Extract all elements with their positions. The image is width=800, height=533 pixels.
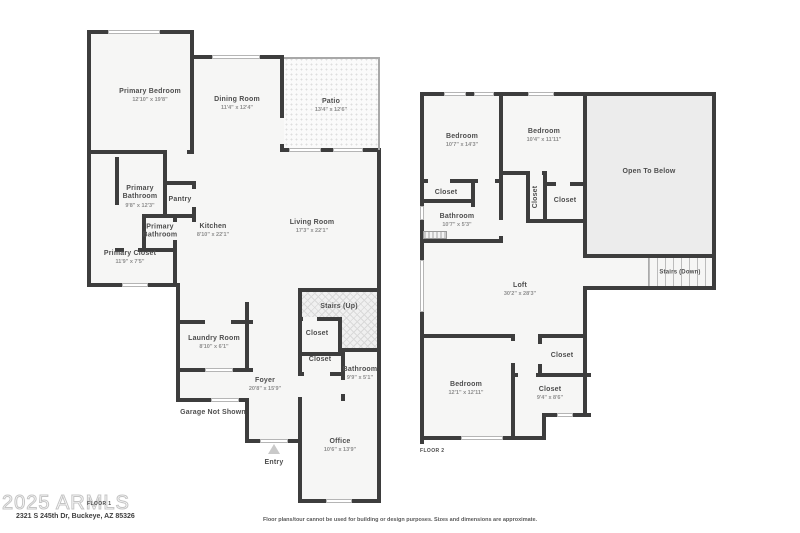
window [461,436,503,440]
room-label-bathroom-f2: Bathroom 10'7" x 5'3" [440,213,475,229]
room-dims: 10'7" x 5'3" [440,222,475,229]
room-name: Office [324,438,356,446]
wall-segment [298,288,302,376]
door-opening [167,150,187,154]
wall-segment [190,30,194,154]
door-opening [511,341,515,363]
wall-segment [176,283,180,324]
room-dims: 10'6" x 13'9" [324,447,356,454]
room-dims: 20'8" x 15'9" [249,386,281,393]
room-label-bathroom-f1: Bathroom 9'9" x 5'1" [343,366,378,382]
room-dims: 10'4" x 11'11" [527,137,562,144]
wall-segment [377,148,381,503]
room-label-patio: Patio 13'4" x 12'6" [315,98,347,114]
room-name: Closet [537,386,563,394]
wall-segment [583,286,587,417]
room-name: Pantry [169,196,192,204]
floor2-label: FLOOR 2 [420,448,444,454]
wall-segment [420,239,503,243]
room-dims: 13'4" x 12'6" [315,107,347,114]
wall-segment [298,288,381,292]
door-opening [192,189,196,207]
door-opening [530,171,542,175]
room-label-primary-bedroom: Primary Bedroom 12'10" x 19'8" [119,88,181,104]
garage-note-text: Garage Not Shown [180,409,246,417]
door-opening [304,372,330,376]
room-label-stairs-up: Stairs (Up) [320,303,358,311]
door-opening [303,317,317,321]
room-label-closet-c: Closet [551,352,574,360]
window [528,92,554,96]
room-name: Primary Bathroom [133,224,187,241]
window [108,30,160,34]
door-opening [538,344,542,364]
room-label-bedroom-2: Bedroom 10'4" x 11'11" [527,128,562,144]
floor1-label: FLOOR 1 [87,501,111,507]
room-label-stairs-down: Stairs (Down) [659,269,700,276]
entry-arrow-icon [268,444,280,454]
wall-segment [712,254,716,290]
room-dims: 11'9" x 7'5" [104,259,156,266]
window [444,92,466,96]
room-name: Closet [435,189,458,197]
window [420,260,424,312]
bathroom-vanity [423,231,447,239]
entry-door-opening [260,439,288,443]
room-dims: 11'4" x 12'4" [214,105,260,112]
room-label-primary-closet: Primary Closet 11'9" x 7'5" [104,250,156,266]
garage-note: Garage Not Shown [180,409,246,417]
room-dims: 9'4" x 8'6" [537,395,563,402]
room-name: Closet [551,352,574,360]
door-opening [518,373,536,377]
room-label-foyer: Foyer 20'8" x 15'9" [249,377,281,393]
room-label-primary-bathroom-2: Primary Bathroom [133,224,187,241]
wall-segment [538,334,587,338]
room-label-living-room: Living Room 17'3" x 22'1" [290,219,335,235]
door-opening [341,380,345,394]
window [474,92,494,96]
room-dims: 9'9" x 5'1" [343,375,378,382]
door-opening [478,179,495,183]
window [289,148,321,152]
room-dims: 8'10" x 6'1" [188,344,240,351]
room-name: Bathroom [343,366,378,374]
window [212,55,260,59]
room-name: Closet [309,356,332,364]
room-name: Kitchen [197,223,229,231]
door-opening [428,179,450,183]
room-label-bedroom-3: Bedroom 12'1" x 12'11" [448,381,483,397]
wall-segment [87,30,91,287]
room-name: Laundry Room [188,335,240,343]
wall-segment [245,398,249,443]
wall-segment [341,348,381,352]
room-label-closet-rotated: Closet [532,186,540,209]
room-dims: 30'2" x 28'3" [504,291,536,298]
room-label-primary-bathroom-1: Primary Bathroom 9'8" x 12'3" [113,185,167,209]
room-label-kitchen: Kitchen 8'10" x 22'1" [197,223,229,239]
wall-segment [298,397,302,503]
wall-segment [420,199,475,203]
patio-thin-wall [378,57,380,150]
patio-door-opening [280,118,284,144]
window [420,206,424,220]
room-dims: 10'7" x 14'3" [446,142,478,149]
room-name: Foyer [249,377,281,385]
room-name: Bedroom [448,381,483,389]
room-label-closet-d: Closet 9'4" x 8'6" [537,386,563,402]
room-dims: 12'1" x 12'11" [448,390,483,397]
room-name: Primary Closet [104,250,156,258]
room-dims: 17'3" x 22'1" [290,228,335,235]
laundry-door-opening [205,368,233,372]
room-name: Dining Room [214,96,260,104]
door-opening [499,220,503,236]
door-opening [205,320,231,324]
room-name: Bathroom [440,213,475,221]
entry-label: Entry [265,459,284,467]
door-opening [556,182,570,186]
wall-segment [142,214,196,218]
room-label-closet-a: Closet [435,189,458,197]
window [122,283,148,287]
room-name: Primary Bedroom [119,88,181,96]
room-label-bedroom-1: Bedroom 10'7" x 14'3" [446,133,478,149]
wall-segment [542,413,546,440]
floor-plan-page: Primary Bedroom 12'10" x 19'8" Dining Ro… [0,0,800,533]
wall-segment [526,171,530,223]
wall-segment [543,219,587,223]
room-name: Loft [504,282,536,290]
room-label-closet-2: Closet [309,356,332,364]
room-name: Closet [554,197,577,205]
room-name: Living Room [290,219,335,227]
room-label-pantry: Pantry [169,196,192,204]
room-name: Closet [306,330,329,338]
room-label-closet-1: Closet [306,330,329,338]
room-name: Primary Bathroom [113,185,167,202]
room-name: Bedroom [527,128,562,136]
room-name: Stairs (Up) [320,303,358,311]
garage-door-opening [211,398,239,402]
room-dims: 12'10" x 19'8" [119,97,181,104]
entry-text: Entry [265,459,284,467]
window [326,499,352,503]
room-name: Patio [315,98,347,106]
disclaimer-text: Floor plans/tour cannot be used for buil… [0,517,800,523]
window [557,413,573,417]
room-label-office: Office 10'6" x 13'9" [324,438,356,454]
room-label-dining-room: Dining Room 11'4" x 12'4" [214,96,260,112]
room-label-laundry-room: Laundry Room 8'10" x 6'1" [188,335,240,351]
room-name: Closet [532,186,540,209]
wall-segment [583,286,716,290]
room-dims: 8'10" x 22'1" [197,232,229,239]
wall-segment [543,171,547,223]
room-name: Bedroom [446,133,478,141]
room-label-closet-right: Closet [554,197,577,205]
room-name: Open To Below [622,168,675,176]
wall-segment [245,302,249,372]
room-label-open-to-below: Open To Below [622,168,675,176]
wall-segment [499,92,503,183]
floor1-fill-main-band [87,150,381,287]
room-name: Stairs (Down) [659,269,700,276]
window [333,148,363,152]
patio-thin-wall [284,57,380,59]
room-label-loft: Loft 30'2" x 28'3" [504,282,536,298]
wall-segment [420,334,515,338]
room-dims: 9'8" x 12'3" [113,203,167,210]
floor1-fill-foyer-bottom [245,397,302,443]
